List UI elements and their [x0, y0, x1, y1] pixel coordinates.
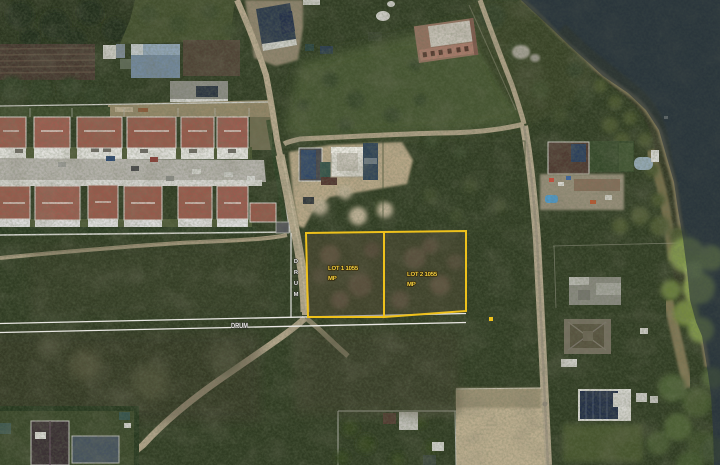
svg-text:M: M — [294, 292, 299, 298]
svg-text:DRUM: DRUM — [231, 321, 248, 330]
svg-text:LOT 1 1055: LOT 1 1055 — [328, 265, 359, 272]
svg-text:LOT 2 1055: LOT 2 1055 — [407, 271, 438, 278]
svg-text:D: D — [294, 259, 298, 265]
svg-text:U: U — [294, 281, 298, 287]
svg-text:MP: MP — [407, 281, 416, 288]
svg-text:MP: MP — [328, 275, 337, 282]
